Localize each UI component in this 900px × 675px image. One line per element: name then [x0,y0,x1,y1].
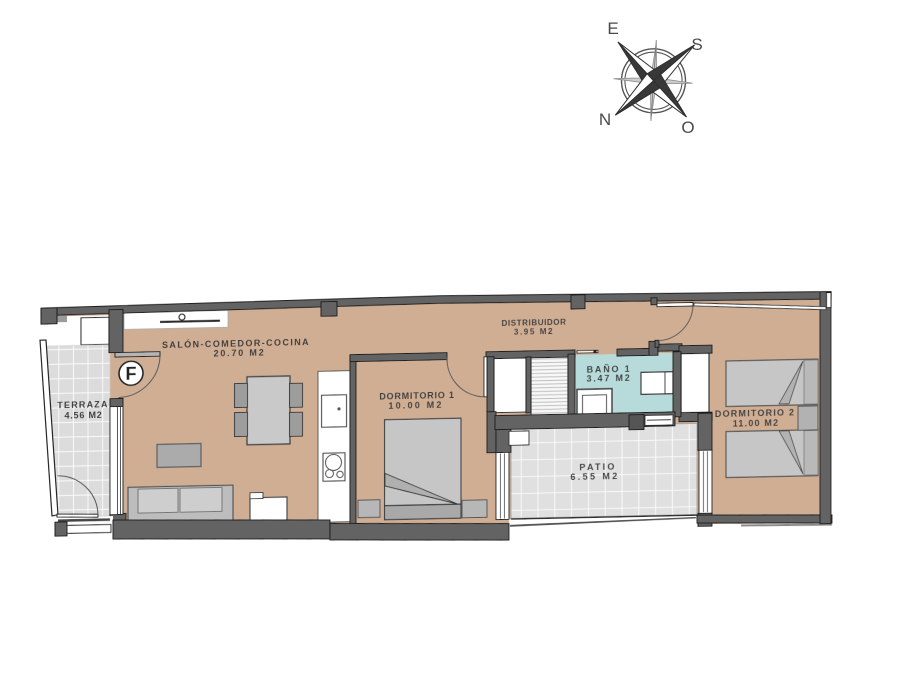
svg-text:11.00 M2: 11.00 M2 [733,418,780,429]
svg-text:O: O [681,118,694,137]
svg-text:3.47 M2: 3.47 M2 [586,373,631,384]
svg-text:S: S [691,35,702,54]
svg-text:N: N [599,110,611,129]
svg-text:6.55 M2: 6.55 M2 [570,471,619,482]
svg-text:10.00 M2: 10.00 M2 [388,400,443,411]
svg-text:3.95 M2: 3.95 M2 [514,327,554,337]
svg-text:F: F [126,364,137,384]
svg-text:20.70 M2: 20.70 M2 [214,347,266,358]
svg-text:4.56 M2: 4.56 M2 [64,410,102,421]
svg-text:TERRAZA: TERRAZA [57,399,108,410]
svg-text:E: E [607,19,618,38]
